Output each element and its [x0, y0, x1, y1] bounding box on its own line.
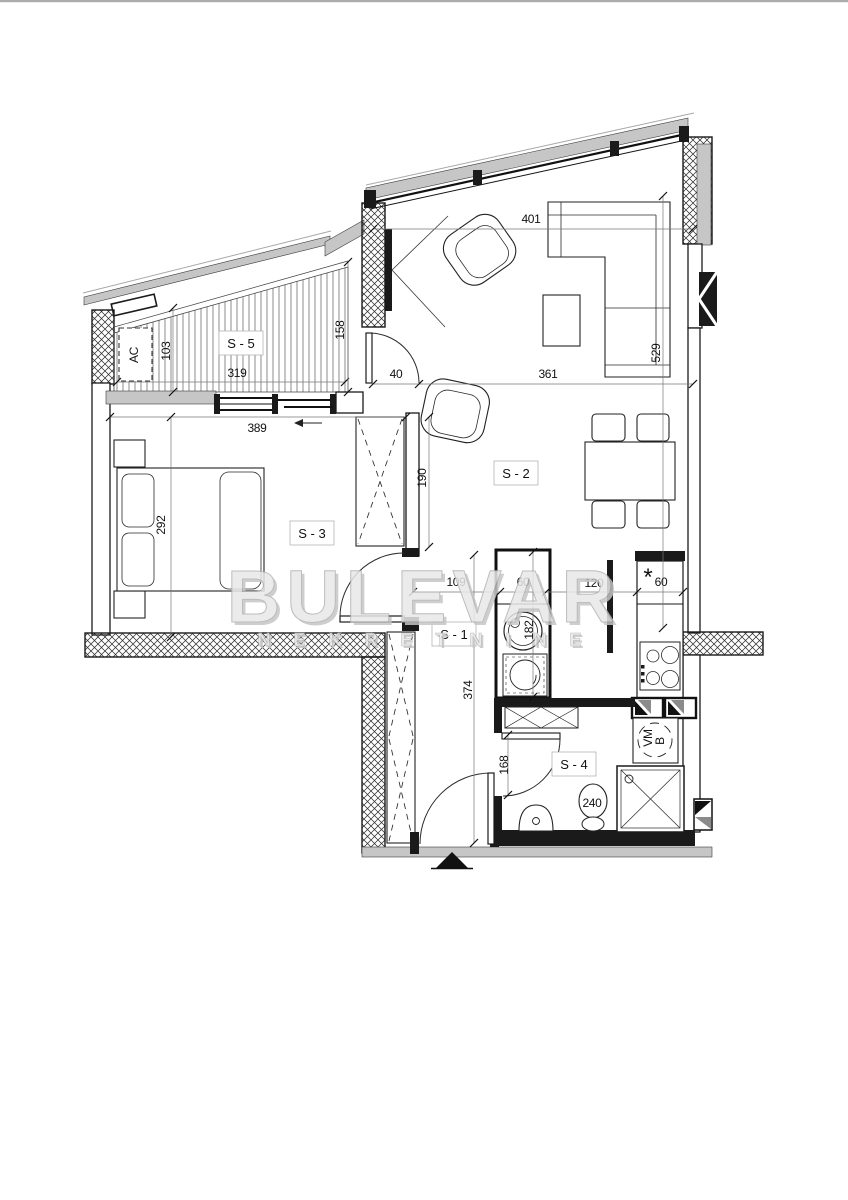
floor-plan-page: AC: [0, 0, 848, 1200]
wall-piece: [336, 392, 363, 413]
window-post: [364, 190, 376, 208]
tv-view-line: [392, 270, 445, 327]
window-post: [272, 394, 278, 414]
bathroom-left-wall: [494, 796, 502, 836]
nightstand: [114, 440, 145, 467]
coffee-table: [543, 295, 580, 346]
hallway: [387, 632, 499, 869]
right-wall-top: [697, 144, 711, 245]
armchair: [437, 208, 523, 292]
room-label-s4: S - 4: [560, 757, 587, 772]
dim-190: 190: [415, 468, 429, 488]
living-facade-wall: [366, 118, 688, 200]
dim-529: 529: [649, 343, 663, 363]
tv: [385, 229, 392, 311]
floor-plan: AC: [0, 0, 848, 1200]
dim-103: 103: [159, 341, 173, 361]
door-post: [410, 832, 419, 854]
nightstand: [114, 591, 145, 618]
dining-table: [585, 442, 675, 500]
room-label-s5: S - 5: [227, 336, 254, 351]
dining-chair: [592, 414, 625, 441]
dim-60b: 60: [655, 575, 668, 589]
room-label-s2: S - 2: [502, 466, 529, 481]
dim-389: 389: [247, 421, 267, 435]
washer-label-b: B: [653, 737, 667, 745]
window-post: [679, 126, 689, 142]
watermark: BULEVAR BULEVAR N E K R E T N I N E N E …: [227, 555, 624, 652]
kitchen-top-wall: [635, 551, 685, 561]
hall-left-wall: [362, 657, 385, 853]
dim-361: 361: [538, 367, 558, 381]
dining-chair: [592, 501, 625, 528]
dim-168: 168: [497, 755, 511, 775]
window-post: [473, 170, 482, 185]
window-post: [330, 394, 336, 414]
dining-chair: [637, 414, 669, 441]
dim-158: 158: [333, 320, 347, 340]
window-post: [610, 141, 619, 156]
sink-symbol: *: [643, 564, 652, 591]
hall-wardrobe: [387, 632, 415, 843]
cooktop: [640, 642, 680, 690]
terrace-door-leaf: [366, 333, 372, 383]
dining-chair: [637, 501, 669, 528]
dim-240: 240: [582, 796, 602, 810]
railing-panel: [111, 294, 157, 316]
dim-292: 292: [154, 515, 168, 535]
dim-319: 319: [227, 366, 247, 380]
bathroom-top-wall: [494, 698, 635, 707]
page-top-border: [0, 0, 848, 2]
bathroom-sink: [519, 805, 553, 831]
tv-view-line: [392, 216, 448, 270]
terrace-parapet: [106, 391, 216, 404]
bathroom-door-leaf: [502, 733, 560, 739]
right-wall-mid: [688, 328, 700, 633]
window-post: [214, 394, 220, 414]
dim-401: 401: [521, 212, 541, 226]
entrance-door-swing: [420, 773, 491, 844]
bathroom-door-swing: [503, 739, 560, 796]
terrace-wall-connector: [325, 220, 364, 256]
toilet-base: [582, 817, 604, 831]
entrance-door-leaf: [488, 773, 494, 844]
column-terrace-left: [92, 310, 114, 384]
room-label-s3: S - 3: [298, 526, 325, 541]
party-wall-stub: [683, 632, 763, 655]
column-terrace-right: [362, 203, 385, 327]
dim-374: 374: [461, 680, 475, 700]
bathroom-cabinet: [505, 707, 578, 728]
dim-40: 40: [390, 367, 403, 381]
watermark-subtitle: N E K R E T N I N E: [257, 630, 590, 650]
ac-label: AC: [127, 346, 141, 363]
bedroom-left-wall: [92, 383, 110, 635]
watermark-title: BULEVAR: [227, 555, 621, 638]
